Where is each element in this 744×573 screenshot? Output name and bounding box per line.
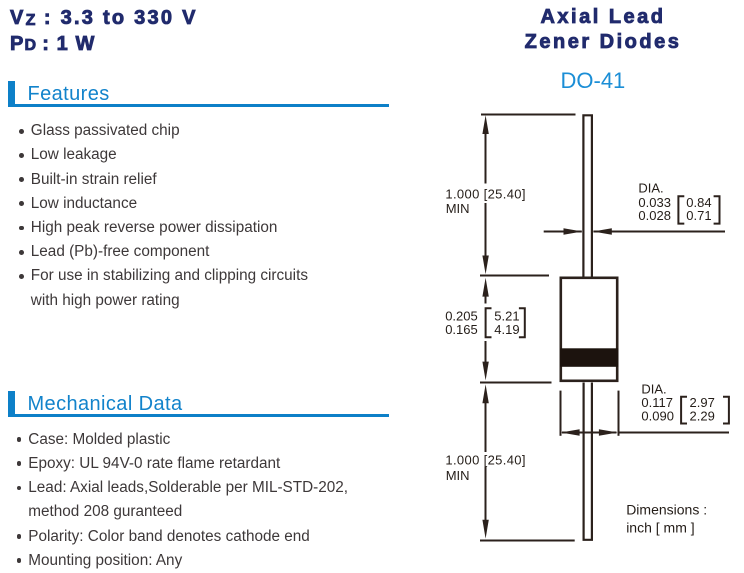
svg-text:inch [ mm ]: inch [ mm ] xyxy=(626,519,694,535)
svg-text:Dimensions :: Dimensions : xyxy=(626,501,707,517)
svg-text:0.028: 0.028 xyxy=(638,208,671,223)
svg-text:0.71: 0.71 xyxy=(686,208,711,223)
svg-text:1.000 [25.40]: 1.000 [25.40] xyxy=(445,186,525,201)
svg-text:MIN: MIN xyxy=(446,468,470,483)
svg-text:0.090: 0.090 xyxy=(641,409,674,424)
svg-text:2.29: 2.29 xyxy=(690,409,715,424)
svg-text:4.19: 4.19 xyxy=(494,322,519,337)
svg-text:0.165: 0.165 xyxy=(445,322,478,337)
svg-text:DIA.: DIA. xyxy=(638,181,663,196)
svg-text:MIN: MIN xyxy=(446,201,470,216)
svg-text:1.000 [25.40]: 1.000 [25.40] xyxy=(445,453,525,468)
